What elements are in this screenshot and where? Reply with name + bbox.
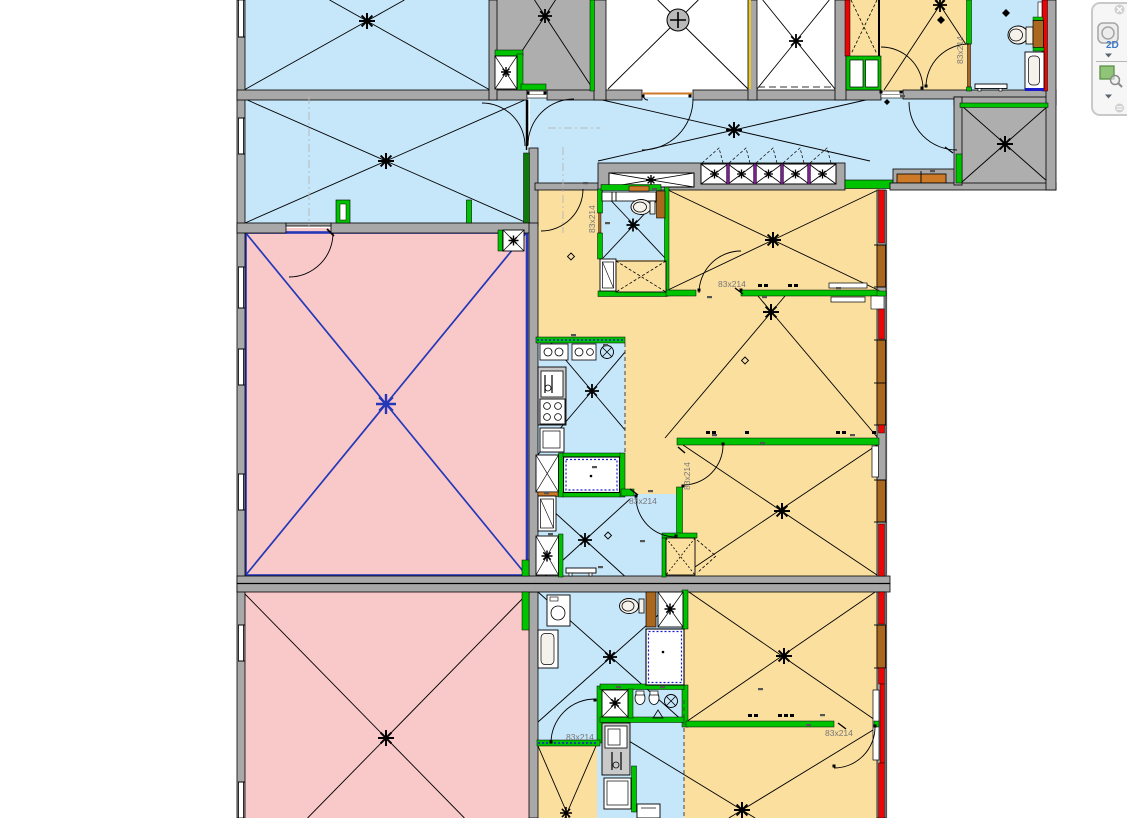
svg-text:2D: 2D [1106,40,1119,51]
svg-text:83x214: 83x214 [682,462,692,490]
svg-text:83x214: 83x214 [587,205,597,233]
svg-text:83x214: 83x214 [825,728,853,738]
svg-text:83x214: 83x214 [566,732,594,742]
svg-text:83x214: 83x214 [629,496,657,506]
svg-text:83x214: 83x214 [955,36,965,64]
svg-text:83x214: 83x214 [718,279,746,289]
